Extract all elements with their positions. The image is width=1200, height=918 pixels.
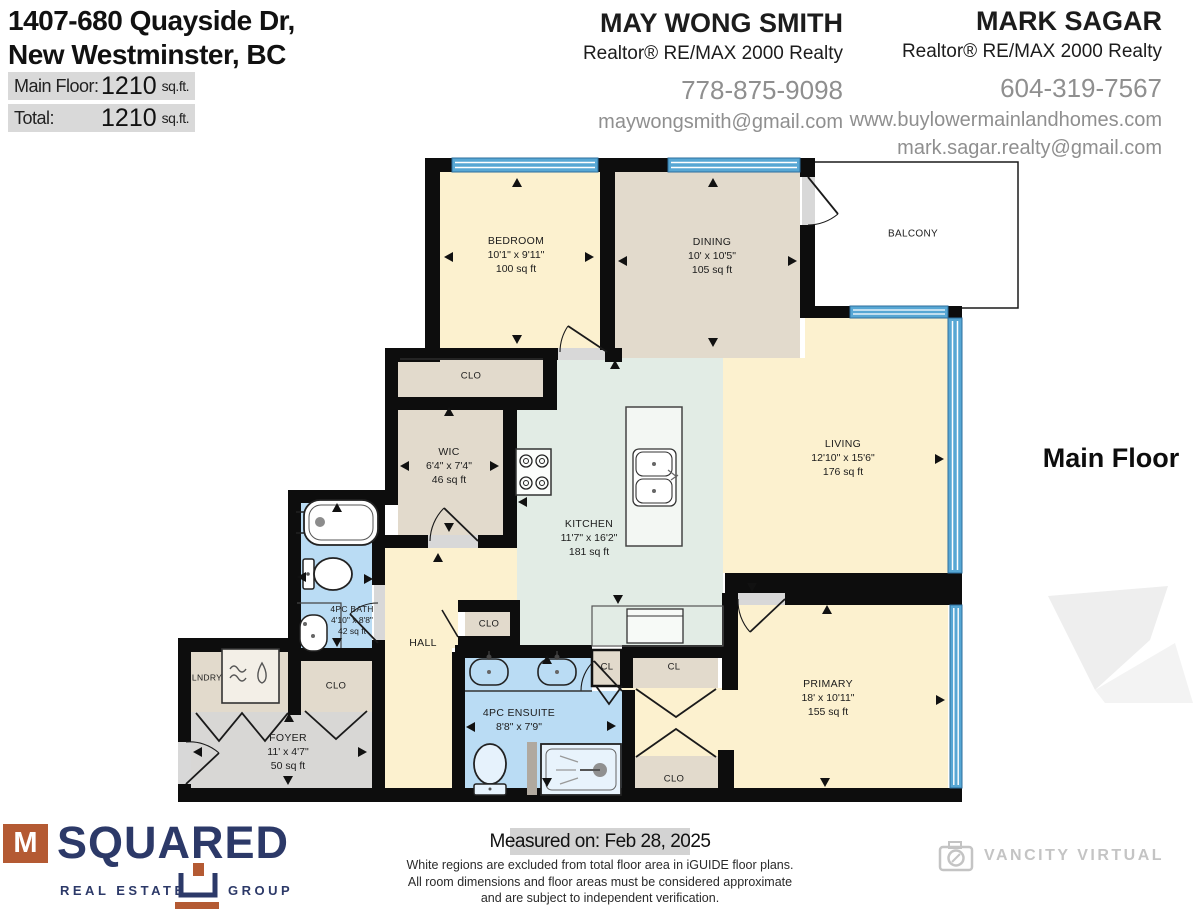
area-unit: sq.ft.	[162, 78, 189, 94]
vancity-wordmark: VANCITY VIRTUAL	[984, 847, 1164, 865]
agent-name: MARK SAGAR	[850, 6, 1162, 37]
agent-phone: 778-875-9098	[583, 75, 843, 106]
msquared-m-icon: M	[3, 824, 48, 863]
measured-on-badge: Measured on: Feb 28, 2025	[510, 828, 690, 855]
toilet-icon	[474, 744, 506, 795]
area-unit: sq.ft.	[162, 110, 189, 126]
area-row-total: Total: 1210 sq.ft.	[8, 104, 195, 132]
agent-title: Realtor® RE/MAX 2000 Realty	[583, 43, 843, 65]
floor-area-table: Main Floor: 1210 sq.ft. Total: 1210 sq.f…	[8, 72, 195, 132]
area-label: Total:	[14, 108, 101, 129]
address-line2: New Westminster, BC	[8, 38, 295, 72]
shower-icon	[527, 742, 621, 795]
disclaimer-text: White regions are excluded from total fl…	[400, 857, 800, 907]
washer-icon	[222, 649, 279, 703]
agent-title: Realtor® RE/MAX 2000 Realty	[850, 41, 1162, 63]
house-icon	[173, 861, 223, 911]
kitchen-island-icon	[626, 407, 682, 546]
watermark-shape	[1035, 575, 1200, 705]
agent-card-may-wong-smith: MAY WONG SMITH Realtor® RE/MAX 2000 Real…	[583, 8, 843, 134]
floorplan-drawing	[170, 150, 1030, 810]
property-address: 1407-680 Quayside Dr, New Westminster, B…	[8, 4, 295, 72]
msquared-realestate: REAL ESTATE	[60, 883, 187, 898]
area-label: Main Floor:	[14, 76, 101, 97]
agent-card-mark-sagar: MARK SAGAR Realtor® RE/MAX 2000 Realty 6…	[850, 6, 1162, 160]
floor-title: Main Floor	[1041, 443, 1181, 474]
agent-name: MAY WONG SMITH	[583, 8, 843, 39]
area-row-main-floor: Main Floor: 1210 sq.ft.	[8, 72, 195, 100]
vancity-virtual-logo: VANCITY VIRTUAL	[938, 840, 1164, 872]
agent-phone: 604-319-7567	[850, 73, 1162, 104]
agent-website: www.buylowermainlandhomes.com	[850, 109, 1162, 132]
toilet-icon	[303, 558, 352, 590]
stove-icon	[516, 449, 551, 495]
area-value: 1210	[101, 72, 157, 101]
camera-icon	[938, 840, 976, 872]
agent-email: maywongsmith@gmail.com	[583, 111, 843, 134]
msquared-logo: M SQUARED REAL ESTATE GROUP	[3, 823, 363, 915]
msquared-group: GROUP	[228, 883, 293, 898]
floorplan-page: 1407-680 Quayside Dr, New Westminster, B…	[0, 0, 1200, 918]
address-line1: 1407-680 Quayside Dr,	[8, 4, 295, 38]
area-value: 1210	[101, 104, 157, 133]
